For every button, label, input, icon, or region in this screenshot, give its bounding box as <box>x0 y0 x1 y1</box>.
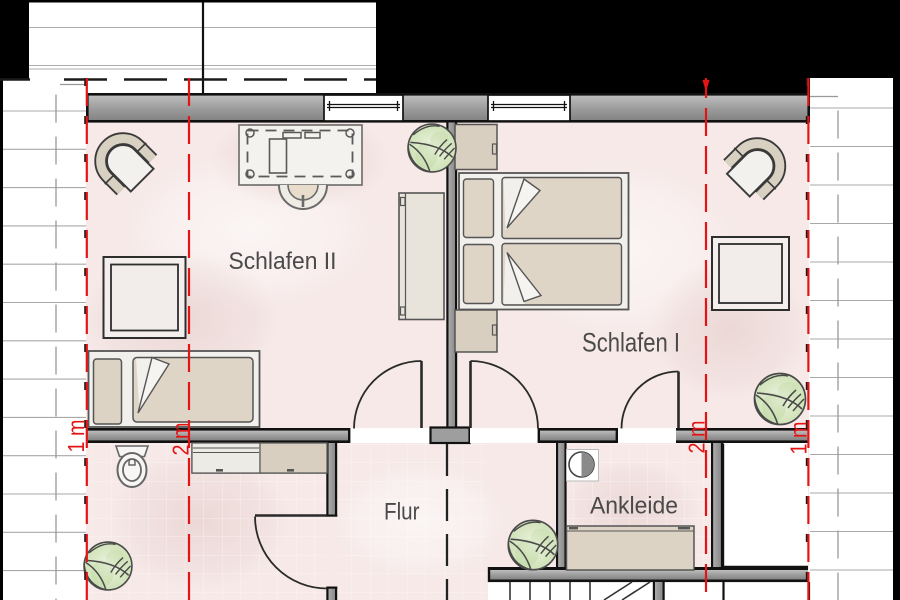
svg-text:Schlafen II: Schlafen II <box>229 248 337 275</box>
svg-text:1 m: 1 m <box>786 422 812 455</box>
svg-text:2 m: 2 m <box>684 421 710 454</box>
svg-text:Schlafen I: Schlafen I <box>582 328 680 358</box>
svg-text:Ankleide: Ankleide <box>590 493 678 520</box>
svg-text:2 m: 2 m <box>168 423 194 456</box>
svg-text:Flur: Flur <box>384 499 420 526</box>
svg-text:1 m: 1 m <box>63 420 89 453</box>
